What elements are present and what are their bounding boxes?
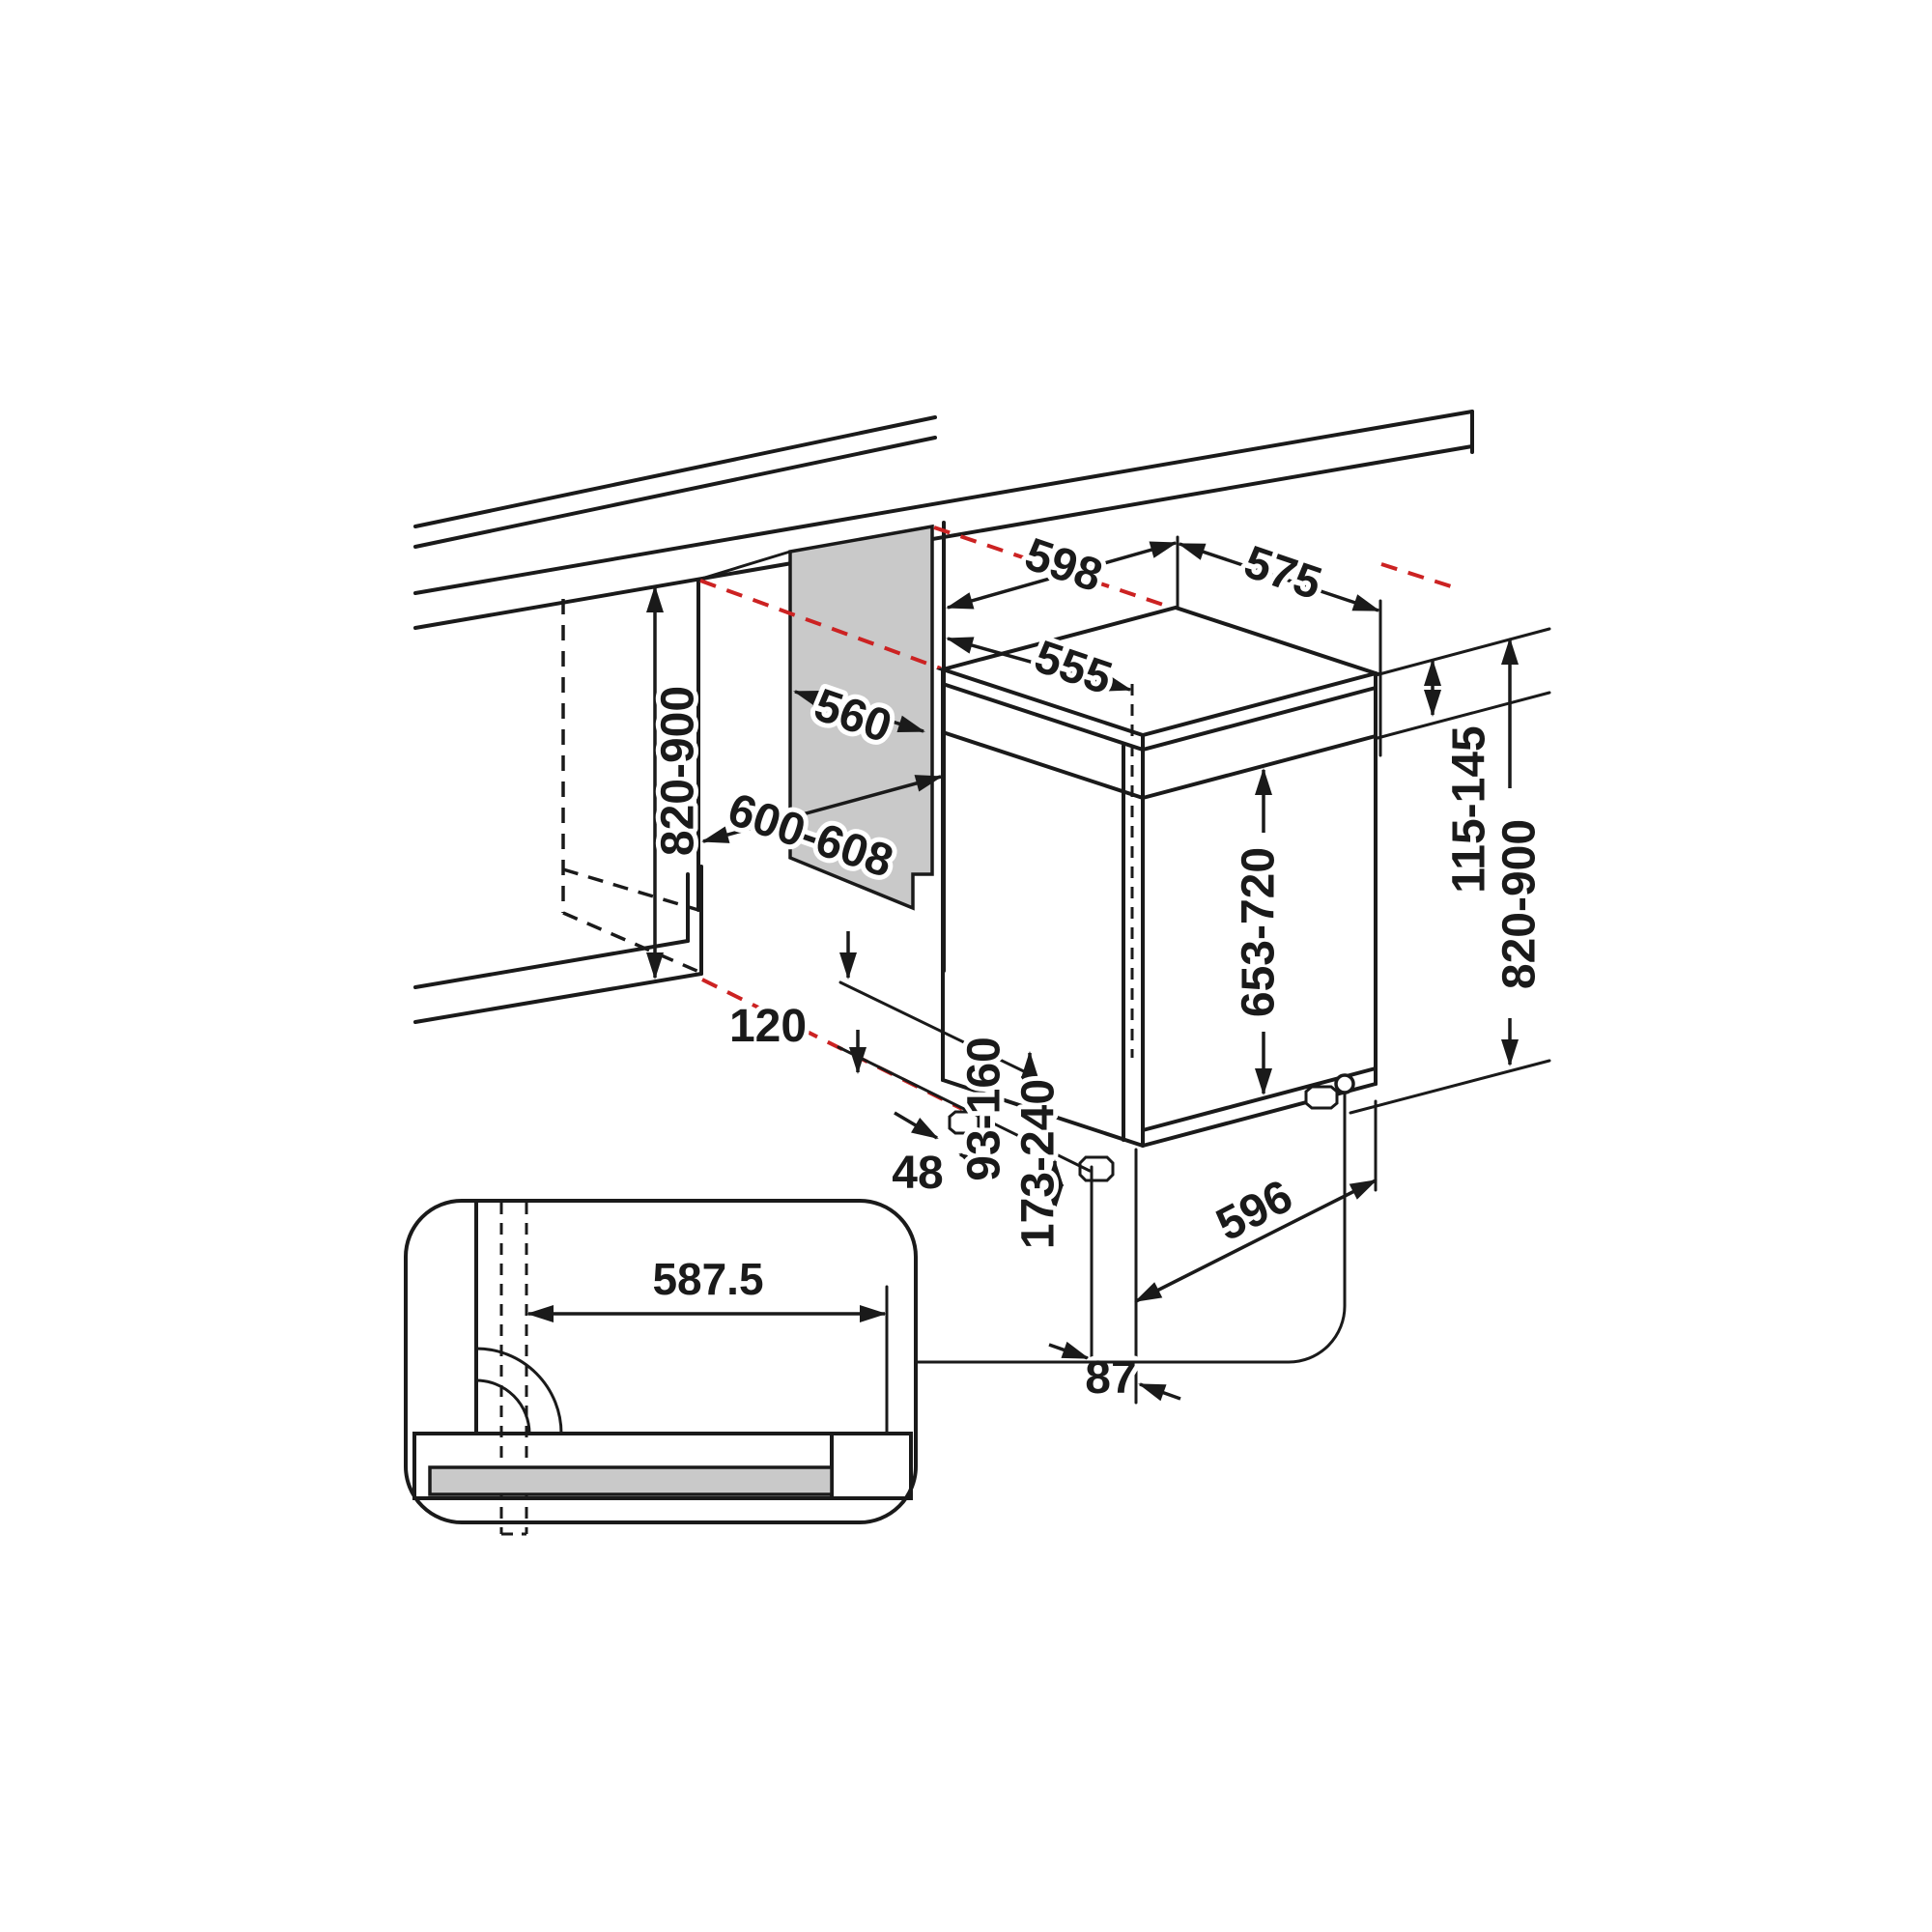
dim-label-87: 87	[1085, 1352, 1136, 1404]
dim-label-48: 48	[892, 1148, 943, 1199]
plinth-panel	[430, 1467, 832, 1494]
dim-653-720: 653-720	[1234, 770, 1285, 1094]
dim-label-596: 596	[1208, 1171, 1300, 1252]
dim-label-598: 598	[1018, 528, 1108, 602]
leader-anchor	[1336, 1075, 1353, 1093]
dim-587-5: 587.5	[528, 1254, 887, 1434]
dim-label-575: 575	[1237, 536, 1327, 610]
dim-575: 575	[1179, 536, 1380, 755]
installation-diagram: 820-900 598 575 555 560 600-608	[0, 0, 1932, 1932]
detail-inset: 587.5	[406, 1201, 916, 1534]
foot-front-right	[1306, 1087, 1337, 1108]
dim-label-587-5: 587.5	[652, 1254, 763, 1304]
dim-label-173-240: 173-240	[1013, 1079, 1065, 1249]
dim-label-120: 120	[729, 1001, 807, 1052]
dim-niche-height: 820-900	[653, 587, 704, 978]
dim-173-240: 173-240	[1013, 1079, 1065, 1249]
dim-label-555: 555	[1028, 631, 1118, 704]
dim-596: 596	[1136, 1101, 1376, 1301]
dim-label-niche-height: 820-900	[653, 686, 704, 856]
niche	[563, 523, 944, 974]
diagram-page: 820-900 598 575 555 560 600-608	[0, 0, 1932, 1932]
dim-label-93-160: 93-160	[959, 1037, 1010, 1180]
dim-87: 87	[1049, 1150, 1180, 1404]
dim-label-appliance-height: 820-900	[1494, 819, 1546, 989]
dim-598: 598	[948, 528, 1178, 609]
dimensions: 820-900 598 575 555 560 600-608	[653, 528, 1549, 1404]
dim-label-653-720: 653-720	[1234, 847, 1285, 1017]
dim-label-115-145: 115-145	[1444, 725, 1495, 894]
